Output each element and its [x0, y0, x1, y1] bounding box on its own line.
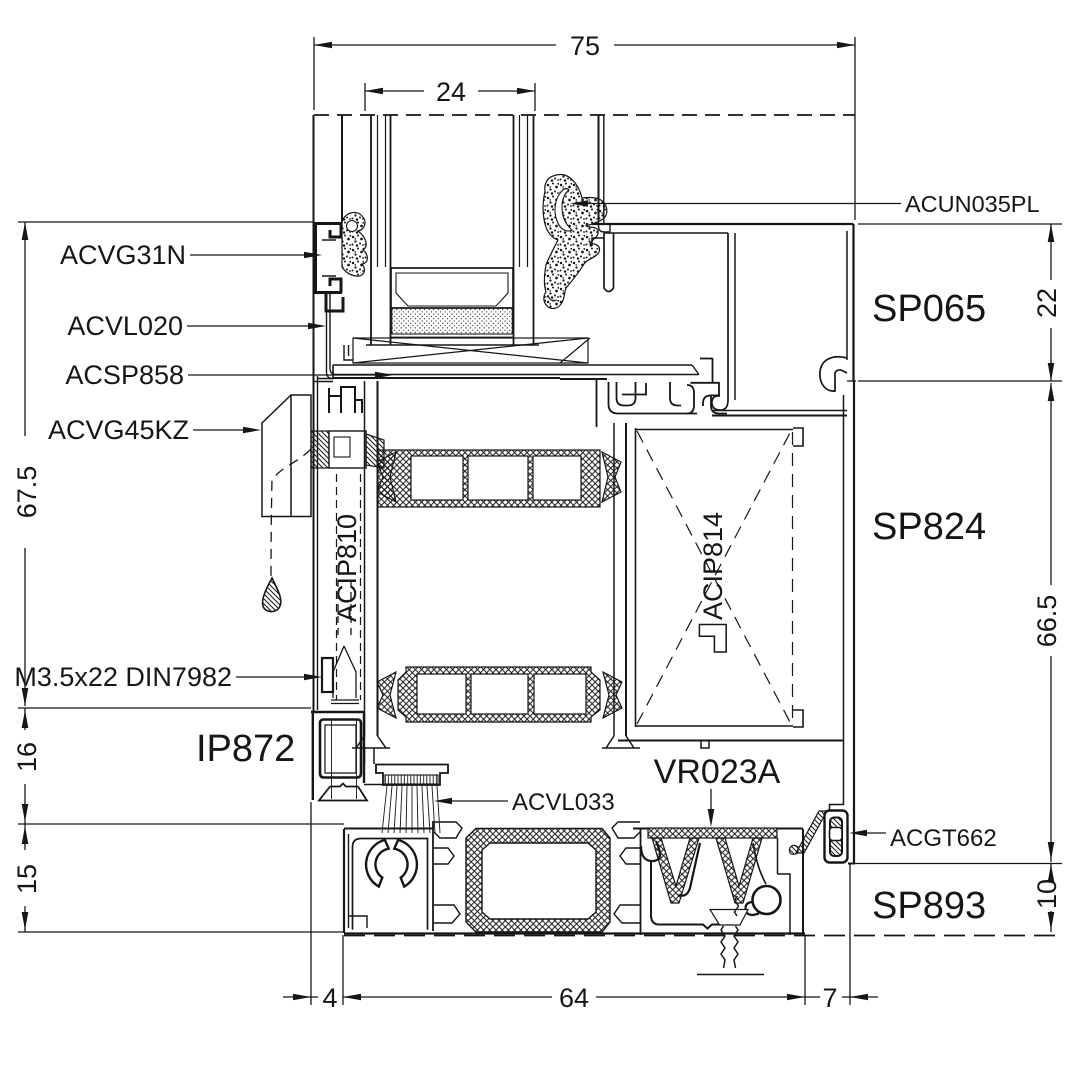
svg-text:15: 15 [12, 864, 42, 894]
svg-text:64: 64 [559, 983, 589, 1013]
svg-text:SP824: SP824 [872, 506, 986, 548]
svg-text:67.5: 67.5 [12, 466, 42, 519]
svg-text:ACVG31N: ACVG31N [60, 240, 186, 270]
svg-text:22: 22 [1032, 288, 1062, 318]
svg-text:M3.5x22 DIN7982: M3.5x22 DIN7982 [14, 662, 232, 692]
svg-text:VR023A: VR023A [654, 753, 781, 791]
svg-text:SP065: SP065 [872, 288, 986, 330]
svg-text:ACUN035PL: ACUN035PL [905, 191, 1040, 217]
svg-text:ACVL020: ACVL020 [67, 311, 183, 341]
svg-text:IP872: IP872 [196, 728, 295, 770]
svg-text:4: 4 [322, 983, 337, 1013]
svg-text:ACIP810: ACIP810 [332, 514, 362, 622]
svg-text:7: 7 [822, 983, 837, 1013]
svg-text:ACSP858: ACSP858 [65, 360, 184, 390]
svg-text:24: 24 [436, 77, 466, 107]
svg-text:ACGT662: ACGT662 [890, 825, 997, 852]
svg-text:10: 10 [1032, 879, 1062, 909]
svg-text:SP893: SP893 [872, 885, 986, 927]
svg-text:66.5: 66.5 [1032, 595, 1062, 648]
svg-text:ACIP814: ACIP814 [698, 512, 728, 620]
svg-text:ACVL033: ACVL033 [512, 789, 615, 816]
svg-text:16: 16 [12, 742, 42, 772]
svg-text:75: 75 [570, 31, 600, 61]
svg-text:ACVG45KZ: ACVG45KZ [48, 415, 189, 445]
